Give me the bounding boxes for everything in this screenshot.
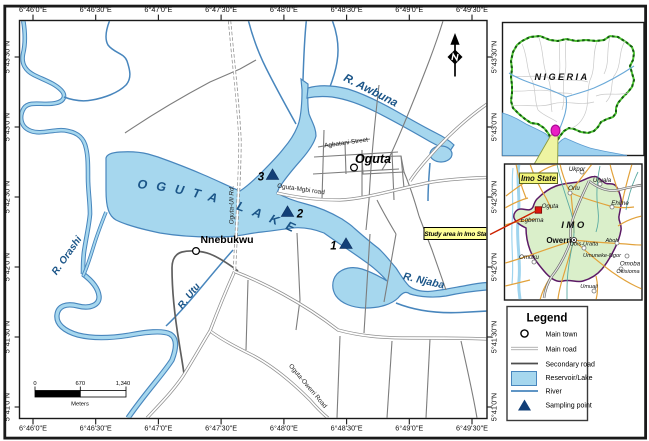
svg-text:6°48'0"E: 6°48'0"E [270, 424, 298, 433]
svg-text:6°47'30"E: 6°47'30"E [205, 5, 237, 14]
svg-text:2: 2 [296, 209, 304, 221]
svg-text:6°47'0"E: 6°47'0"E [144, 5, 172, 14]
svg-text:IMO: IMO [561, 220, 586, 231]
svg-text:Omoku: Omoku [519, 254, 540, 261]
svg-text:Ukpor: Ukpor [569, 166, 586, 173]
svg-text:3: 3 [258, 172, 265, 184]
svg-text:5°41'0"N: 5°41'0"N [3, 393, 12, 421]
svg-text:Omoba: Omoba [620, 261, 641, 268]
svg-text:Study area in Imo State: Study area in Imo State [424, 231, 492, 238]
svg-text:Owerri: Owerri [546, 236, 571, 245]
svg-text:6°47'0"E: 6°47'0"E [144, 424, 172, 433]
svg-text:Aboh: Aboh [604, 238, 618, 244]
svg-text:Main road: Main road [546, 347, 577, 354]
svg-text:NIGERIA: NIGERIA [534, 72, 589, 82]
svg-text:Oguta: Oguta [542, 203, 559, 210]
svg-text:Imo State: Imo State [521, 174, 557, 183]
svg-text:6°49'30"E: 6°49'30"E [456, 5, 488, 14]
svg-text:0: 0 [33, 381, 36, 387]
svg-text:5°43'30"N: 5°43'30"N [490, 41, 499, 73]
svg-text:River: River [546, 389, 563, 396]
svg-text:Oguta: Oguta [355, 152, 391, 166]
svg-text:Orlu: Orlu [568, 185, 580, 192]
svg-text:1,340: 1,340 [116, 381, 131, 387]
svg-text:6°49'30"E: 6°49'30"E [456, 424, 488, 433]
svg-text:Nnebukwu: Nnebukwu [200, 234, 253, 246]
svg-text:1: 1 [330, 241, 336, 253]
svg-text:Main town: Main town [546, 332, 578, 339]
svg-text:5°41'30"N: 5°41'30"N [490, 321, 499, 353]
svg-text:Uruala: Uruala [593, 177, 612, 184]
svg-text:5°41'30"N: 5°41'30"N [3, 321, 12, 353]
svg-text:6°48'30"E: 6°48'30"E [331, 5, 363, 14]
svg-text:6°46'30"E: 6°46'30"E [80, 5, 112, 14]
svg-text:Reservoir/Lake: Reservoir/Lake [546, 375, 593, 382]
svg-text:Umuneke-Ngor: Umuneke-Ngor [583, 253, 622, 259]
svg-text:6°47'30"E: 6°47'30"E [205, 424, 237, 433]
svg-text:6°48'0"E: 6°48'0"E [270, 5, 298, 14]
svg-text:5°42'0"N: 5°42'0"N [490, 253, 499, 281]
svg-text:Secondary road: Secondary road [546, 362, 596, 369]
svg-text:Okisioma: Okisioma [616, 269, 639, 275]
svg-text:5°42'0"N: 5°42'0"N [3, 253, 12, 281]
svg-text:5°42'30"N: 5°42'30"N [3, 181, 12, 213]
svg-text:5°42'30"N: 5°42'30"N [490, 181, 499, 213]
svg-text:6°46'0"E: 6°46'0"E [19, 424, 47, 433]
svg-text:5°41'0"N: 5°41'0"N [490, 393, 499, 421]
svg-text:5°43'0"N: 5°43'0"N [490, 113, 499, 141]
svg-text:6°46'30"E: 6°46'30"E [80, 424, 112, 433]
svg-text:Meters: Meters [71, 402, 89, 408]
svg-text:Obis-Uratta: Obis-Uratta [570, 242, 599, 248]
svg-text:5°43'0"N: 5°43'0"N [3, 113, 12, 141]
svg-text:Oguta-Uli Rd.: Oguta-Uli Rd. [229, 186, 236, 225]
svg-text:6°49'0"E: 6°49'0"E [395, 424, 423, 433]
svg-text:Legend: Legend [527, 313, 568, 325]
svg-text:6°46'0"E: 6°46'0"E [19, 5, 47, 14]
svg-text:Egbema: Egbema [520, 217, 544, 224]
svg-text:5°43'30"N: 5°43'30"N [3, 41, 12, 73]
svg-text:6°48'30"E: 6°48'30"E [331, 424, 363, 433]
svg-text:Ehime: Ehime [611, 200, 629, 207]
svg-text:Sampling point: Sampling point [546, 403, 592, 410]
svg-text:6°49'0"E: 6°49'0"E [395, 5, 423, 14]
svg-text:670: 670 [75, 381, 85, 387]
svg-text:Umuaji: Umuaji [580, 284, 598, 290]
